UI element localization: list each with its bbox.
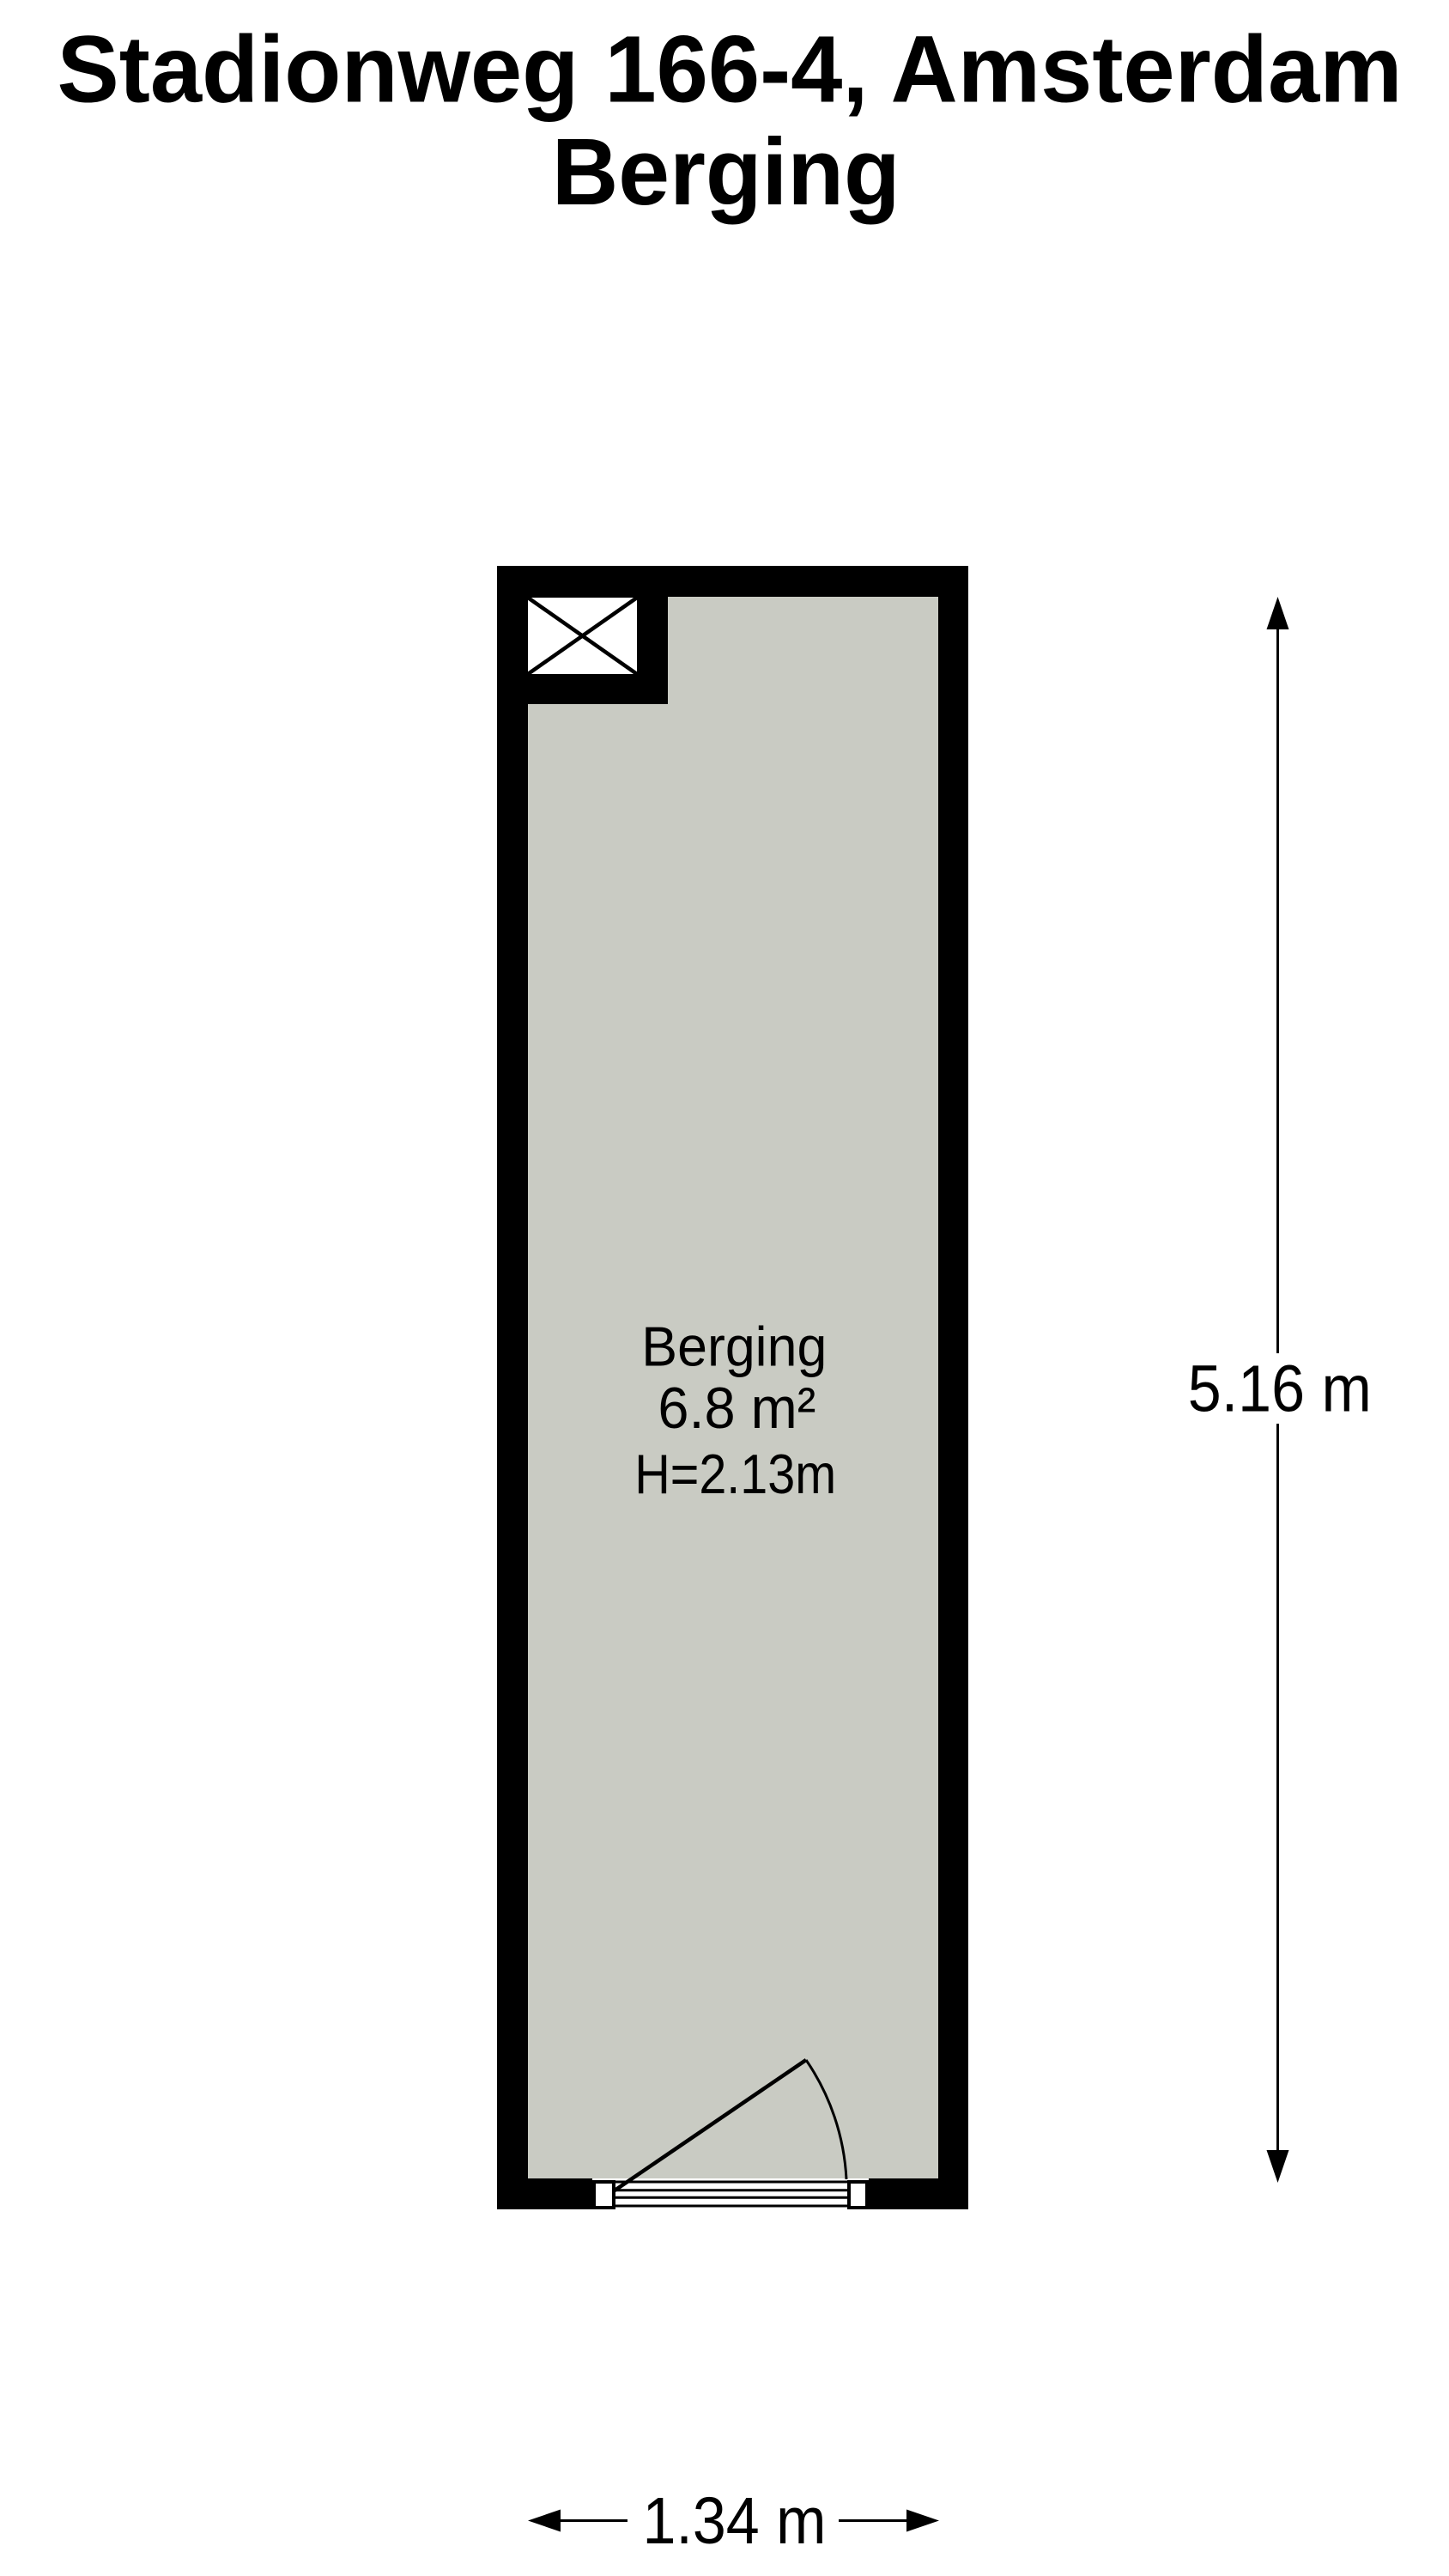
svg-text:Stadionweg 166-4, Amsterdam: Stadionweg 166-4, Amsterdam xyxy=(58,17,1403,123)
svg-text:1.34 m: 1.34 m xyxy=(643,2484,827,2558)
svg-text:Berging: Berging xyxy=(552,119,900,225)
svg-text:Berging: Berging xyxy=(641,1315,827,1378)
svg-text:6.8 m²: 6.8 m² xyxy=(658,1376,815,1441)
svg-text:H=2.13m: H=2.13m xyxy=(634,1443,836,1505)
svg-text:5.16 m: 5.16 m xyxy=(1188,1352,1372,1426)
